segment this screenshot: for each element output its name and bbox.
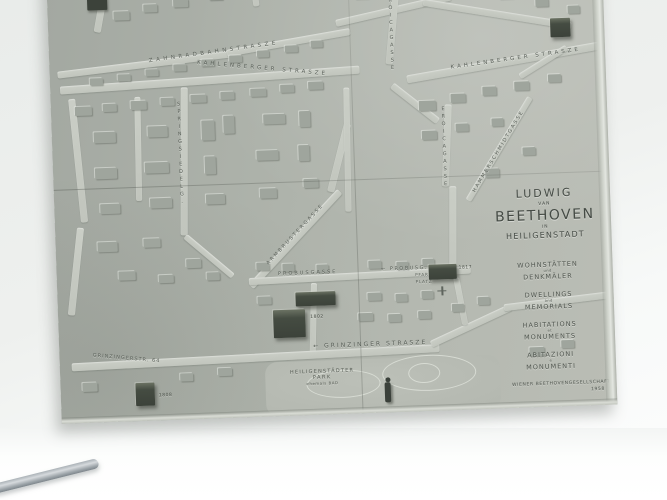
building-block <box>535 0 548 7</box>
building-block <box>145 69 158 76</box>
building-block <box>131 101 147 111</box>
street-segment <box>134 97 142 201</box>
building-block <box>220 92 234 100</box>
building-block <box>514 81 529 91</box>
photo-of-relief-map: { "map": { "title": { "l1": "LUDWIG", "l… <box>0 0 667 500</box>
building-block <box>257 50 269 57</box>
building-block <box>207 272 220 280</box>
building-block <box>567 5 579 13</box>
building-block <box>190 94 206 103</box>
street-segment <box>248 0 260 7</box>
building-block <box>388 314 401 322</box>
building-block <box>422 130 437 140</box>
building-block <box>478 297 490 305</box>
building-block <box>186 259 201 269</box>
legend-entry-german: WOHNSTÄTTEN und DENKMÄLER <box>492 259 603 283</box>
building-block <box>143 4 157 12</box>
building-block <box>145 162 169 174</box>
building-block <box>173 64 186 71</box>
marker-building-probusgasse-6-testament-house <box>273 309 306 338</box>
building-block <box>160 98 174 106</box>
street-segment <box>343 88 351 212</box>
building-block <box>223 116 235 134</box>
building-block <box>451 93 466 103</box>
building-block <box>75 106 92 116</box>
beethoven-statue <box>385 382 392 402</box>
building-block <box>491 118 503 126</box>
building-block <box>90 78 103 85</box>
building-block <box>308 81 323 90</box>
building-block <box>97 242 117 253</box>
street-segment <box>453 277 468 325</box>
building-block <box>82 382 97 392</box>
marker-building-probusgasse-north <box>295 291 335 306</box>
street-segment <box>68 99 88 223</box>
building-block <box>205 156 217 174</box>
building-block <box>395 294 407 302</box>
building-block <box>173 0 188 8</box>
building-block <box>421 291 433 299</box>
mounting-block <box>87 0 107 11</box>
building-block <box>150 198 172 209</box>
building-block <box>522 147 535 155</box>
year-label-1808: 1808 <box>159 393 173 398</box>
building-block <box>218 368 232 376</box>
marker-building-grinzingerstrasse-64 <box>135 382 155 406</box>
building-block <box>419 100 436 111</box>
building-block <box>229 55 242 62</box>
building-block <box>285 45 298 52</box>
building-block <box>147 126 167 138</box>
attribution: WIENER BEETHOVENGESELLSCHAFT 1958 <box>489 379 611 398</box>
building-block <box>456 123 469 131</box>
building-block <box>118 74 131 81</box>
building-block <box>260 188 277 199</box>
building-block <box>180 373 193 381</box>
building-block <box>263 114 285 125</box>
building-block <box>159 275 174 284</box>
park-label: HEILIGENSTÄDTER PARK ehemals BAD <box>274 367 371 387</box>
map-legend: WOHNSTÄTTEN und DENKMÄLER DWELLINGS and … <box>492 259 606 383</box>
building-block <box>298 145 310 161</box>
building-block <box>256 150 278 161</box>
building-block <box>201 120 215 140</box>
building-block <box>119 271 136 281</box>
building-block <box>418 311 431 319</box>
building-block <box>100 204 120 215</box>
building-block <box>358 313 373 322</box>
church-cross-icon <box>437 286 446 295</box>
building-block <box>206 194 225 205</box>
year-label-1817: 1817 <box>459 265 473 270</box>
building-block <box>113 11 129 21</box>
building-block <box>482 86 496 95</box>
street-label-kahlenberger-right: KAHLENBERGER STRASZE <box>434 44 598 73</box>
building-block <box>452 304 464 312</box>
marker-building-pfarrplatz <box>428 264 457 280</box>
legend-entry-french: HABITATIONS et MONUMENTS <box>495 319 606 343</box>
street-segment <box>68 227 84 315</box>
building-block <box>299 111 311 127</box>
legend-entry-italian: ABITAZIONI e MONUMENTI <box>496 349 607 373</box>
building-block <box>548 74 561 82</box>
building-block <box>311 40 323 47</box>
building-block <box>94 132 116 144</box>
wall-bottom <box>0 428 667 500</box>
building-block <box>143 238 160 248</box>
year-label-1802: 1802 <box>310 315 324 320</box>
legend-entry-english: DWELLINGS and MEMORIALS <box>493 289 604 313</box>
marker-building-kahlenbergerstrasse <box>550 18 571 38</box>
building-block <box>103 104 117 112</box>
building-block <box>250 88 266 97</box>
building-block <box>257 296 271 304</box>
map-title: LUDWIG VAN BEETHOVEN IN HEILIGENSTADT <box>478 184 612 242</box>
building-block <box>280 84 294 92</box>
relief-map-plaque: ZAHNRADBAHNSTRASZE KAHLENBERGER STRASZE … <box>46 0 617 424</box>
building-block <box>95 168 117 180</box>
building-block <box>367 292 381 300</box>
